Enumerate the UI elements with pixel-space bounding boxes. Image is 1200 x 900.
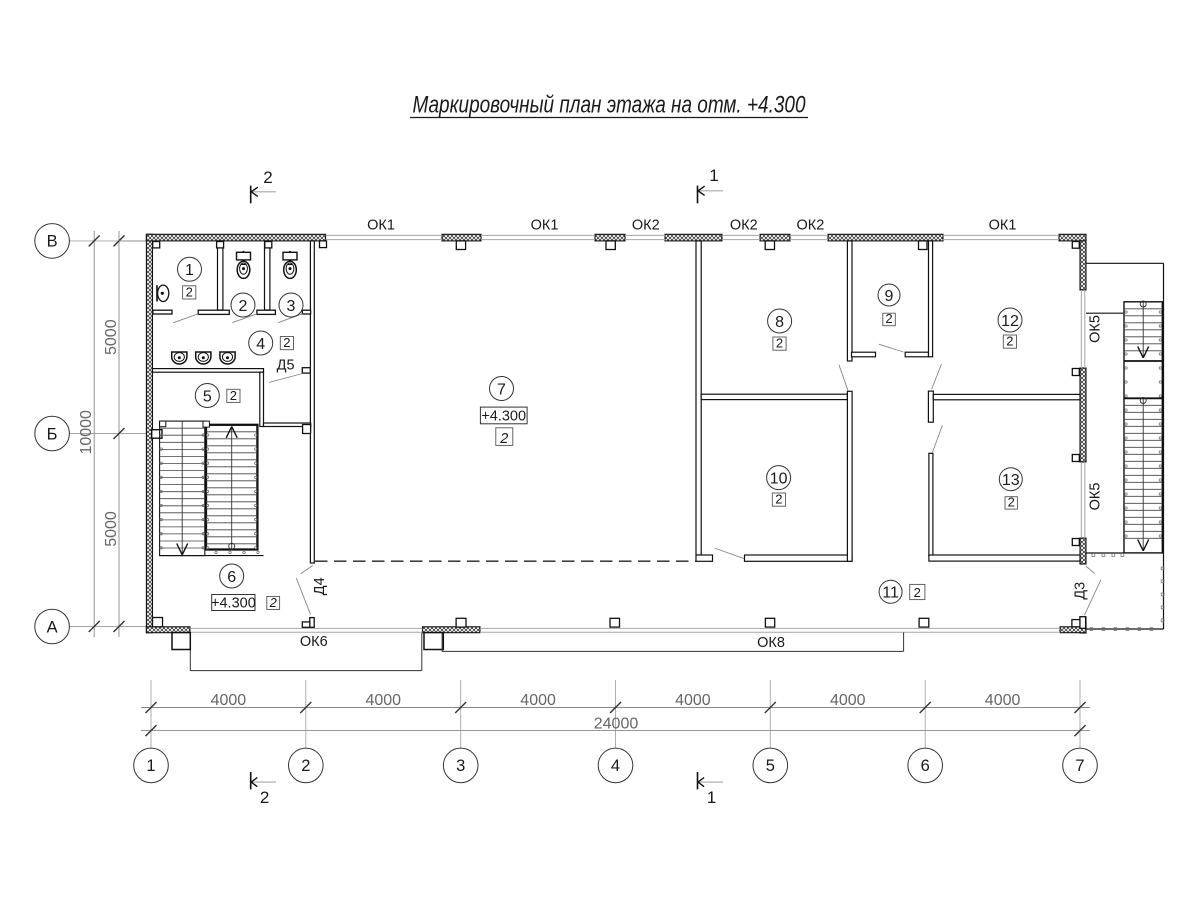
svg-text:10: 10 xyxy=(770,470,788,487)
svg-text:ОК1: ОК1 xyxy=(989,218,1017,234)
svg-text:А: А xyxy=(47,618,58,636)
svg-text:10000: 10000 xyxy=(78,410,95,455)
svg-text:6: 6 xyxy=(921,757,930,775)
svg-text:2: 2 xyxy=(776,336,783,351)
svg-text:ОК2: ОК2 xyxy=(632,218,660,234)
svg-text:Маркировочный план этажа на от: Маркировочный план этажа на отм. +4.300 xyxy=(413,92,807,119)
svg-text:5: 5 xyxy=(203,388,212,405)
svg-text:ОК8: ОК8 xyxy=(757,635,785,651)
svg-text:В: В xyxy=(47,233,58,251)
svg-text:ОК2: ОК2 xyxy=(730,218,758,234)
svg-text:12: 12 xyxy=(1001,313,1019,330)
svg-text:2: 2 xyxy=(263,168,272,187)
svg-text:5: 5 xyxy=(766,757,775,775)
svg-text:2: 2 xyxy=(914,585,921,600)
svg-text:2: 2 xyxy=(1008,495,1015,510)
svg-text:24000: 24000 xyxy=(594,715,639,732)
svg-text:11: 11 xyxy=(882,585,899,602)
svg-text:1: 1 xyxy=(709,166,718,185)
svg-text:2: 2 xyxy=(885,311,892,326)
svg-text:2: 2 xyxy=(499,431,508,447)
svg-text:6: 6 xyxy=(227,569,236,586)
svg-text:2: 2 xyxy=(239,298,248,315)
svg-text:2: 2 xyxy=(775,492,782,507)
svg-text:+4.300: +4.300 xyxy=(481,408,526,424)
svg-text:3: 3 xyxy=(456,757,465,775)
svg-text:ОК1: ОК1 xyxy=(531,218,559,234)
svg-text:ОК5: ОК5 xyxy=(1087,483,1103,511)
svg-text:4000: 4000 xyxy=(520,692,556,709)
svg-text:3: 3 xyxy=(287,298,296,315)
svg-text:7: 7 xyxy=(497,381,506,398)
svg-text:Д3: Д3 xyxy=(1072,582,1088,600)
svg-text:4000: 4000 xyxy=(365,692,401,709)
svg-text:4: 4 xyxy=(611,757,620,775)
svg-text:Б: Б xyxy=(47,425,58,443)
svg-text:2: 2 xyxy=(230,388,237,403)
svg-text:Д4: Д4 xyxy=(312,577,328,595)
svg-text:2: 2 xyxy=(283,335,290,350)
svg-text:9: 9 xyxy=(885,288,894,305)
svg-text:2: 2 xyxy=(269,595,278,610)
svg-text:2: 2 xyxy=(186,284,193,299)
svg-text:5000: 5000 xyxy=(103,511,120,547)
svg-text:2: 2 xyxy=(1006,334,1013,349)
svg-text:7: 7 xyxy=(1075,757,1084,775)
svg-text:1: 1 xyxy=(146,757,155,775)
svg-text:ОК1: ОК1 xyxy=(367,218,395,234)
svg-text:4000: 4000 xyxy=(211,692,247,709)
svg-text:ОК6: ОК6 xyxy=(300,634,328,650)
svg-text:4: 4 xyxy=(256,336,265,353)
svg-text:ОК5: ОК5 xyxy=(1087,315,1103,343)
svg-text:8: 8 xyxy=(775,314,784,331)
svg-text:2: 2 xyxy=(260,788,269,807)
svg-text:1: 1 xyxy=(185,262,194,279)
svg-text:4000: 4000 xyxy=(675,692,711,709)
svg-text:5000: 5000 xyxy=(103,319,120,355)
svg-text:+4.300: +4.300 xyxy=(211,595,256,611)
svg-text:ОК2: ОК2 xyxy=(797,218,825,234)
svg-text:Д5: Д5 xyxy=(277,357,295,373)
svg-text:13: 13 xyxy=(1002,472,1020,489)
svg-text:4000: 4000 xyxy=(985,692,1021,709)
svg-text:4000: 4000 xyxy=(830,692,866,709)
svg-text:2: 2 xyxy=(301,757,310,775)
svg-text:1: 1 xyxy=(707,788,716,807)
